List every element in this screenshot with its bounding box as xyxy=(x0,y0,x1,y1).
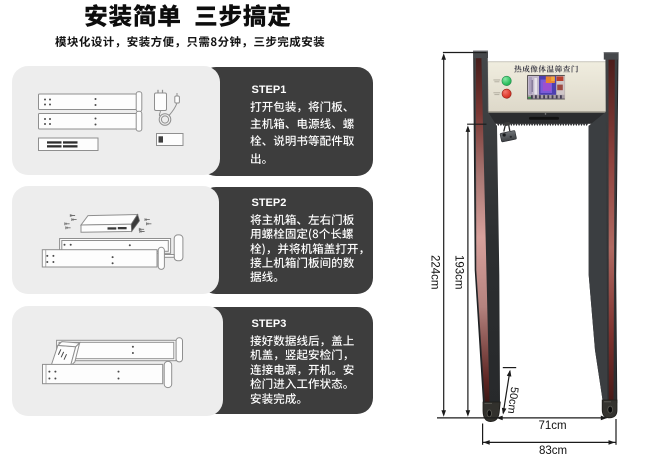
svg-text:71cm: 71cm xyxy=(538,420,566,432)
svg-text:83cm: 83cm xyxy=(539,445,567,457)
svg-text:193cm: 193cm xyxy=(453,255,465,290)
svg-text:224cm: 224cm xyxy=(429,255,441,290)
